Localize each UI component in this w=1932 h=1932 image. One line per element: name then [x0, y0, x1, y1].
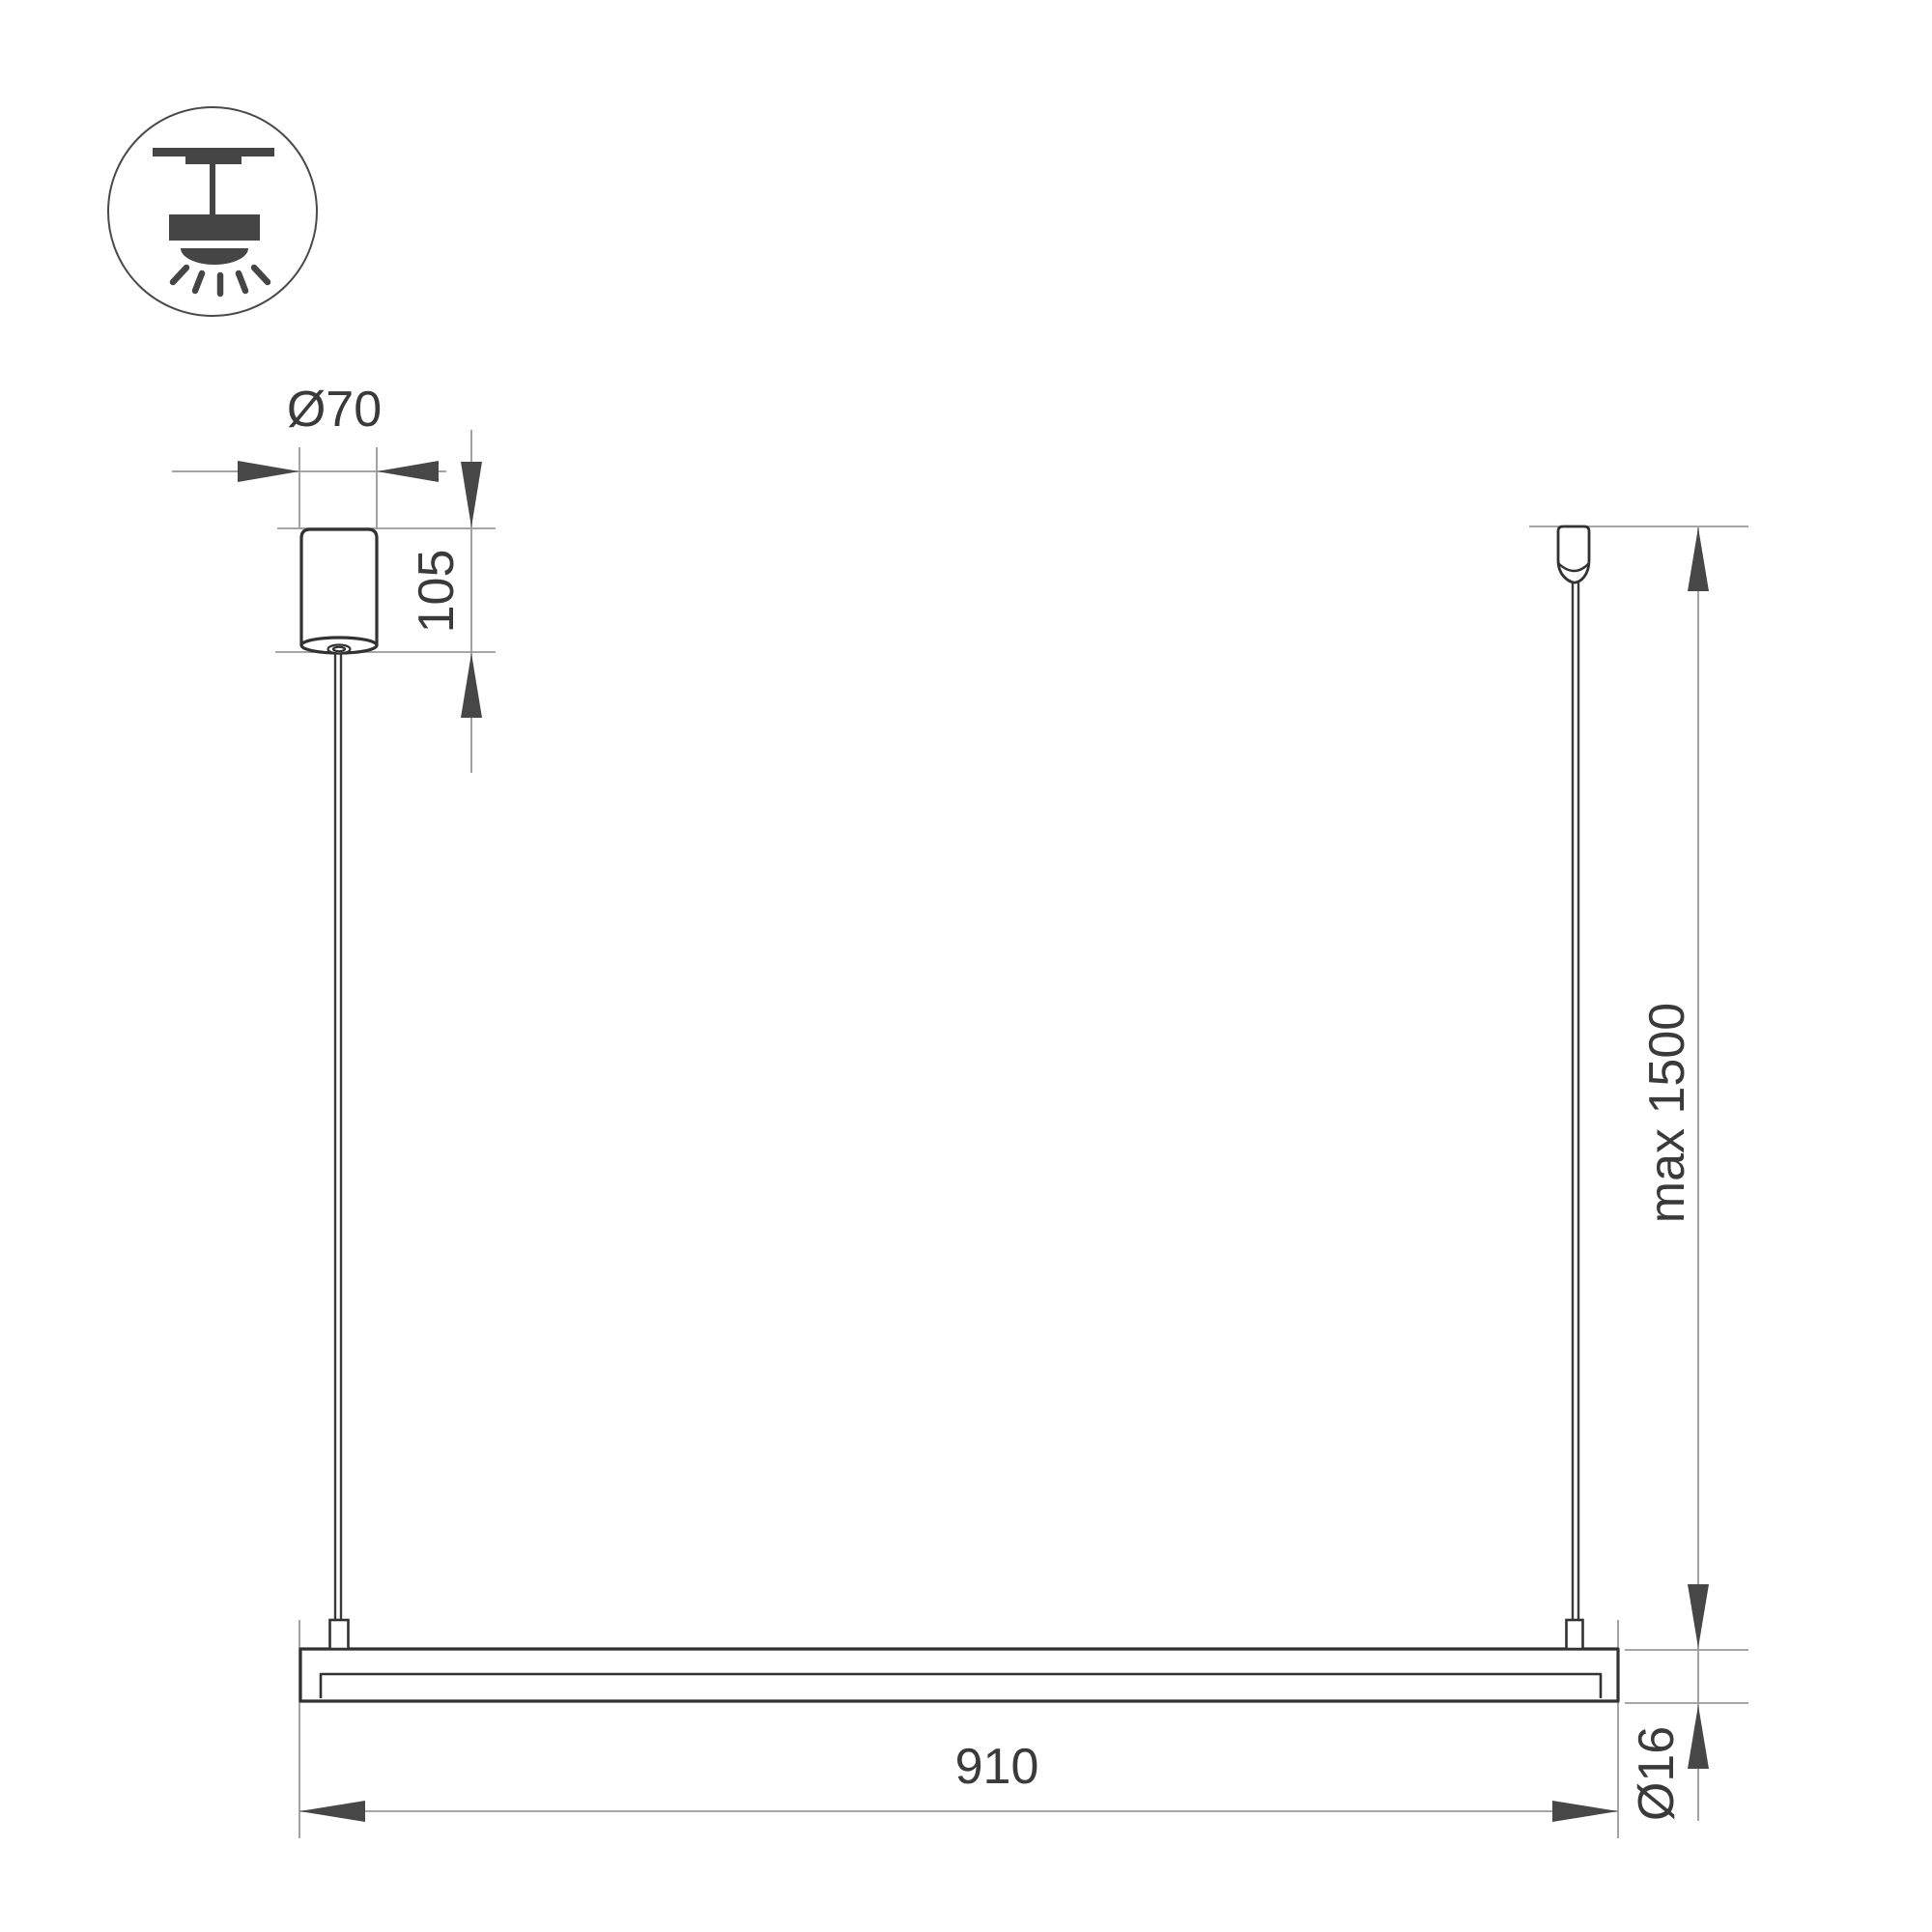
icon-canopy-flange [185, 156, 241, 164]
label-fixture-length: 910 [955, 1739, 1039, 1795]
canopy-body-small [1558, 526, 1589, 582]
icon-stem [210, 164, 215, 216]
left-cable-ferrule [330, 1620, 349, 1649]
arrow-bar-length-right [1552, 1801, 1618, 1822]
label-canopy-diameter: Ø70 [287, 382, 382, 438]
arrow-tube-dia-bottom [1688, 1705, 1709, 1769]
canopy-detail [301, 529, 377, 654]
ceiling-pendant-light-icon [108, 107, 317, 316]
icon-lamp-body [169, 214, 260, 241]
arrow-canopy-height-bottom [461, 653, 482, 718]
label-suspension-length: max 1500 [1639, 1003, 1695, 1223]
suspension-cables [335, 582, 1578, 1623]
cable-grommet-hole [333, 647, 345, 651]
canopy-body [301, 529, 377, 645]
arrow-bar-length-left [299, 1801, 365, 1822]
dimension-drawing: Ø70 105 max 1500 910 Ø16 [0, 0, 1932, 1932]
arrow-canopy-dia-left [238, 461, 299, 482]
arrow-suspension-top [1688, 527, 1709, 591]
luminaire-bar [300, 1620, 1618, 1701]
label-tube-diameter: Ø16 [1629, 1726, 1685, 1821]
right-cable-ferrule [1567, 1620, 1583, 1649]
arrow-canopy-dia-right [377, 461, 439, 482]
arrow-canopy-height-top [461, 462, 482, 527]
canopy-overview [1558, 526, 1589, 582]
icon-ceiling-line [153, 148, 274, 156]
dimension-arrows [238, 461, 1709, 1822]
dimension-labels: Ø70 105 max 1500 910 Ø16 [287, 382, 1695, 1821]
arrow-suspension-bottom [1688, 1584, 1709, 1648]
dimension-lines [172, 430, 1748, 1838]
label-canopy-height: 105 [409, 550, 465, 634]
drawing-canvas: Ø70 105 max 1500 910 Ø16 [0, 0, 1932, 1932]
